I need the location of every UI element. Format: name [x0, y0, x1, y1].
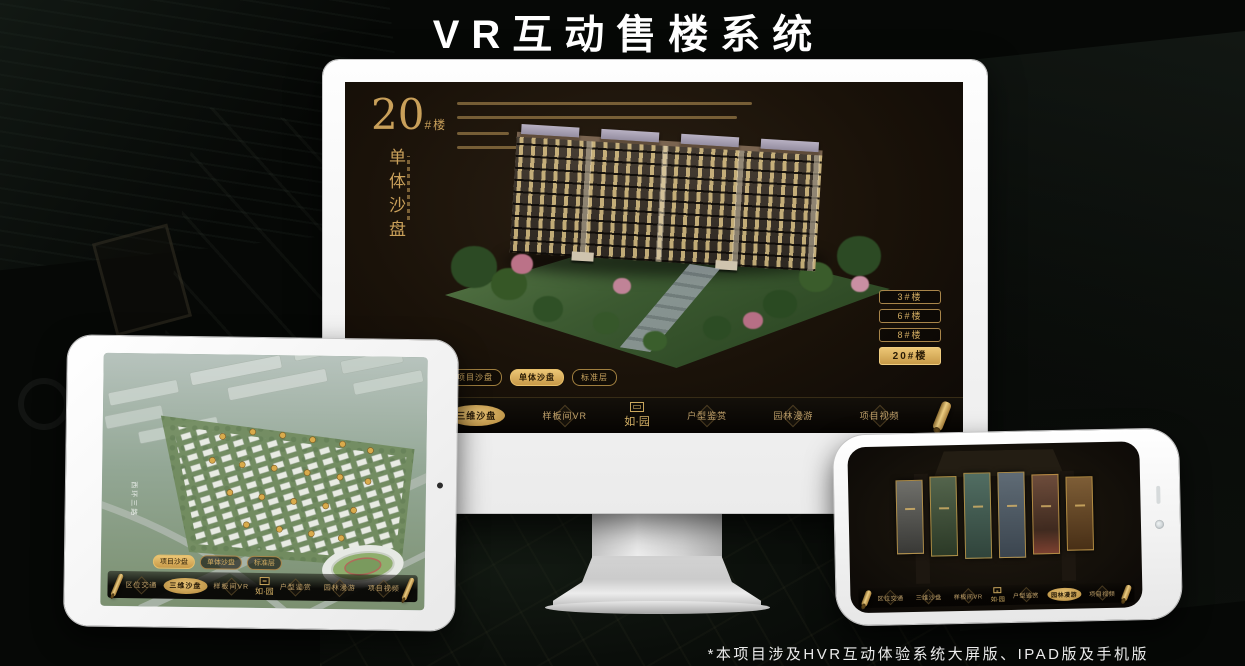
gallery-card-interior[interactable]: [1065, 476, 1094, 551]
tab-single-sandbox[interactable]: 单体沙盘: [510, 369, 564, 386]
tree-shape: [643, 331, 667, 351]
nav-item-3d-sandbox[interactable]: 三维沙盘: [912, 590, 946, 604]
nav-item-garden-roam[interactable]: 园林漫游: [1047, 587, 1081, 601]
seal-icon: [259, 576, 269, 584]
nav-item-unit-gallery[interactable]: 户型鉴赏: [678, 405, 736, 426]
stage: VR互动售楼系统 *本项目涉及HVR互动体验系统大屏版、IPAD版及手机版 20…: [0, 0, 1245, 666]
nav-item-3d-sandbox[interactable]: 三维沙盘: [163, 577, 207, 594]
tab-standard-floor[interactable]: 标准层: [572, 369, 617, 386]
gallery-card-garden[interactable]: [929, 476, 958, 557]
tablet-view-tabs: 项目沙盘 单体沙盘 标准层: [153, 554, 282, 570]
brand-logo-text: 如·园: [624, 413, 650, 429]
nav-item-location-traffic[interactable]: 区位交通: [873, 591, 907, 605]
nav-item-project-video[interactable]: 项目视频: [851, 405, 909, 426]
description-text-blurred: [457, 102, 752, 105]
building-number-suffix: #楼: [424, 118, 447, 132]
brand-logo: 如·园: [255, 576, 274, 596]
monitor-stand-base: [545, 601, 770, 614]
building-title-english-sub: [407, 156, 410, 220]
scene-gallery: [895, 470, 1094, 560]
floor-button-6[interactable]: 6#楼: [879, 309, 941, 323]
nav-item-showroom-vr[interactable]: 样板间VR: [207, 578, 255, 595]
tablet-screen: 西环三路 项目沙盘 单体沙盘 标准层 区位交通 三维沙盘 样板间VR 如·园 户…: [100, 353, 428, 610]
gallery-card-building[interactable]: [997, 472, 1026, 559]
nav-item-unit-gallery[interactable]: 户型鉴赏: [274, 579, 318, 596]
nav-item-unit-gallery[interactable]: 户型鉴赏: [1009, 588, 1043, 602]
tab-single-sandbox[interactable]: 单体沙盘: [200, 555, 242, 570]
gallery-card-courtyard[interactable]: [895, 480, 924, 555]
view-tabs: 项目沙盘 单体沙盘 标准层: [448, 369, 617, 386]
nav-item-garden-roam[interactable]: 园林漫游: [764, 405, 822, 426]
tablet-camera-icon: [437, 482, 443, 488]
phone-camera-icon: [1155, 520, 1164, 529]
nav-item-project-video[interactable]: 项目视频: [1085, 586, 1119, 600]
phone-screen: 区位交通 三维沙盘 样板间VR 如·园 户型鉴赏 园林漫游 项目视频: [847, 441, 1142, 613]
floor-button-8[interactable]: 8#楼: [879, 328, 941, 342]
page-title: VR互动售楼系统: [0, 2, 1245, 60]
brand-logo: 如·园: [991, 587, 1005, 603]
seal-icon: [994, 587, 1002, 593]
tablet-bottom-nav: 区位交通 三维沙盘 样板间VR 如·园 户型鉴赏 园林漫游 项目视频: [107, 571, 417, 602]
tree-shape: [533, 296, 563, 322]
flower-tree-shape: [613, 278, 631, 294]
floor-button-20[interactable]: 20#楼: [879, 347, 941, 365]
entrance-canopy: [571, 251, 594, 261]
phone-device: 区位交通 三维沙盘 样板间VR 如·园 户型鉴赏 园林漫游 项目视频: [833, 428, 1182, 625]
seal-icon: [630, 402, 644, 412]
phone-bottom-nav: 区位交通 三维沙盘 样板间VR 如·园 户型鉴赏 园林漫游 项目视频: [858, 582, 1134, 608]
phone-speaker-icon: [1156, 486, 1160, 504]
description-text-blurred: [457, 116, 737, 119]
brand-logo: 如·园: [624, 402, 650, 429]
scroll-icon[interactable]: [1120, 584, 1132, 602]
building-model-3d[interactable]: [445, 128, 890, 372]
background-framed-plaque: [92, 224, 192, 337]
floor-selector: 3#楼 6#楼 8#楼 20#楼: [879, 290, 941, 365]
flower-tree-shape: [511, 254, 533, 274]
nav-item-showroom-vr[interactable]: 样板间VR: [534, 405, 597, 426]
nav-item-garden-roam[interactable]: 园林漫游: [318, 579, 362, 596]
tab-project-sandbox[interactable]: 项目沙盘: [153, 554, 195, 569]
gallery-card-landscape[interactable]: [963, 472, 992, 559]
gallery-card-autumn[interactable]: [1031, 474, 1060, 555]
nav-item-location-traffic[interactable]: 区位交通: [119, 577, 163, 594]
building-block: [510, 137, 823, 271]
brand-logo-text: 如·园: [991, 594, 1005, 603]
flower-tree-shape: [851, 276, 869, 292]
building-title-vertical: 单体沙盘: [383, 148, 408, 244]
floor-button-3[interactable]: 3#楼: [879, 290, 941, 304]
tablet-device: 西环三路 项目沙盘 单体沙盘 标准层 区位交通 三维沙盘 样板间VR 如·园 户…: [64, 335, 458, 630]
background-watermark-circle: [18, 378, 70, 430]
building-number: 20: [371, 94, 424, 136]
nav-item-showroom-vr[interactable]: 样板间VR: [950, 589, 987, 603]
building-heading: 20#楼: [371, 94, 447, 136]
tree-shape: [703, 316, 731, 340]
flower-tree-shape: [743, 312, 763, 329]
tree-shape: [593, 312, 619, 334]
tree-shape: [763, 290, 797, 318]
footnote-text: *本项目涉及HVR互动体验系统大屏版、IPAD版及手机版: [708, 643, 1149, 664]
tree-shape: [837, 236, 881, 276]
brand-logo-text: 如·园: [255, 585, 274, 596]
building-piers: [510, 137, 823, 271]
scroll-icon[interactable]: [861, 589, 873, 607]
nav-item-project-video[interactable]: 项目视频: [362, 580, 406, 597]
scroll-icon[interactable]: [932, 400, 953, 432]
tab-standard-floor[interactable]: 标准层: [247, 556, 282, 570]
